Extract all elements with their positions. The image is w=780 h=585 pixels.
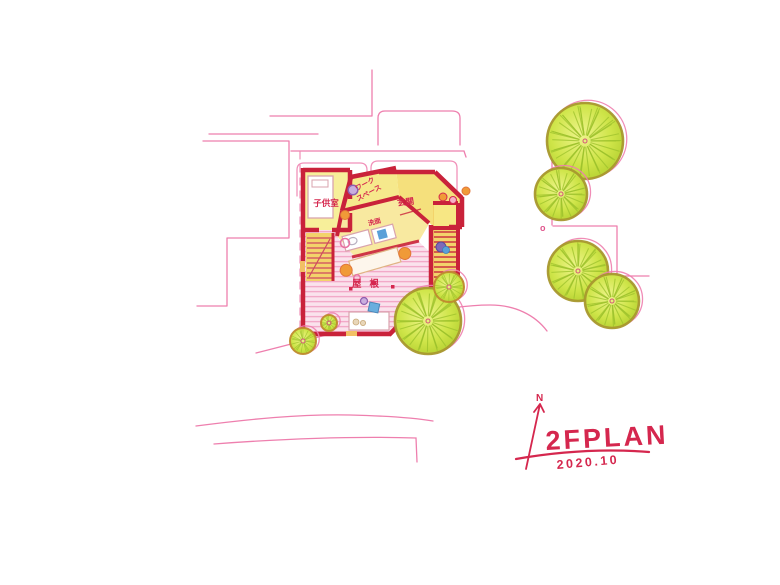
deck-plant-purple bbox=[361, 298, 368, 305]
plan-date: 2020.10 bbox=[556, 453, 620, 472]
label-kids-room: 子供室 bbox=[313, 198, 339, 208]
deck-chair bbox=[368, 302, 380, 313]
bush bbox=[290, 326, 319, 354]
north-label: N bbox=[536, 393, 543, 404]
sketch-page: 子供室 ワーク スペース 玄関 洗面 屋根 o N 2FPLAN 2020.10 bbox=[0, 0, 780, 585]
title-block: N 2FPLAN 2020.10 bbox=[516, 393, 669, 472]
window-bottom bbox=[346, 331, 357, 336]
flower-dot-2 bbox=[391, 285, 395, 289]
neighbor-outline-top bbox=[378, 111, 460, 145]
desk-pebble-2 bbox=[360, 320, 365, 325]
entry-pot-1 bbox=[439, 193, 447, 201]
stool-kids-room bbox=[341, 211, 350, 220]
street-line-mid bbox=[291, 151, 466, 157]
entry-pot-2 bbox=[450, 197, 457, 204]
entry-pot-3 bbox=[462, 187, 470, 195]
label-roof-deck: 屋根 bbox=[352, 278, 387, 290]
site-marker: o bbox=[540, 223, 546, 233]
window-left bbox=[300, 261, 305, 272]
bush bbox=[434, 270, 467, 302]
road-curve-lower bbox=[196, 415, 433, 426]
north-arrow bbox=[526, 404, 544, 469]
road-line-lower bbox=[214, 437, 417, 462]
tree bbox=[585, 271, 643, 328]
stair-plant-blue2 bbox=[443, 247, 450, 254]
desk-pebble-1 bbox=[353, 319, 359, 325]
street-line-top bbox=[270, 70, 372, 116]
stair-landing bbox=[434, 204, 457, 226]
inner-stair-floor bbox=[306, 233, 332, 281]
plan-canvas: 子供室 ワーク スペース 玄関 洗面 屋根 o N 2FPLAN 2020.10 bbox=[0, 0, 780, 585]
bed-pillow bbox=[312, 180, 328, 187]
